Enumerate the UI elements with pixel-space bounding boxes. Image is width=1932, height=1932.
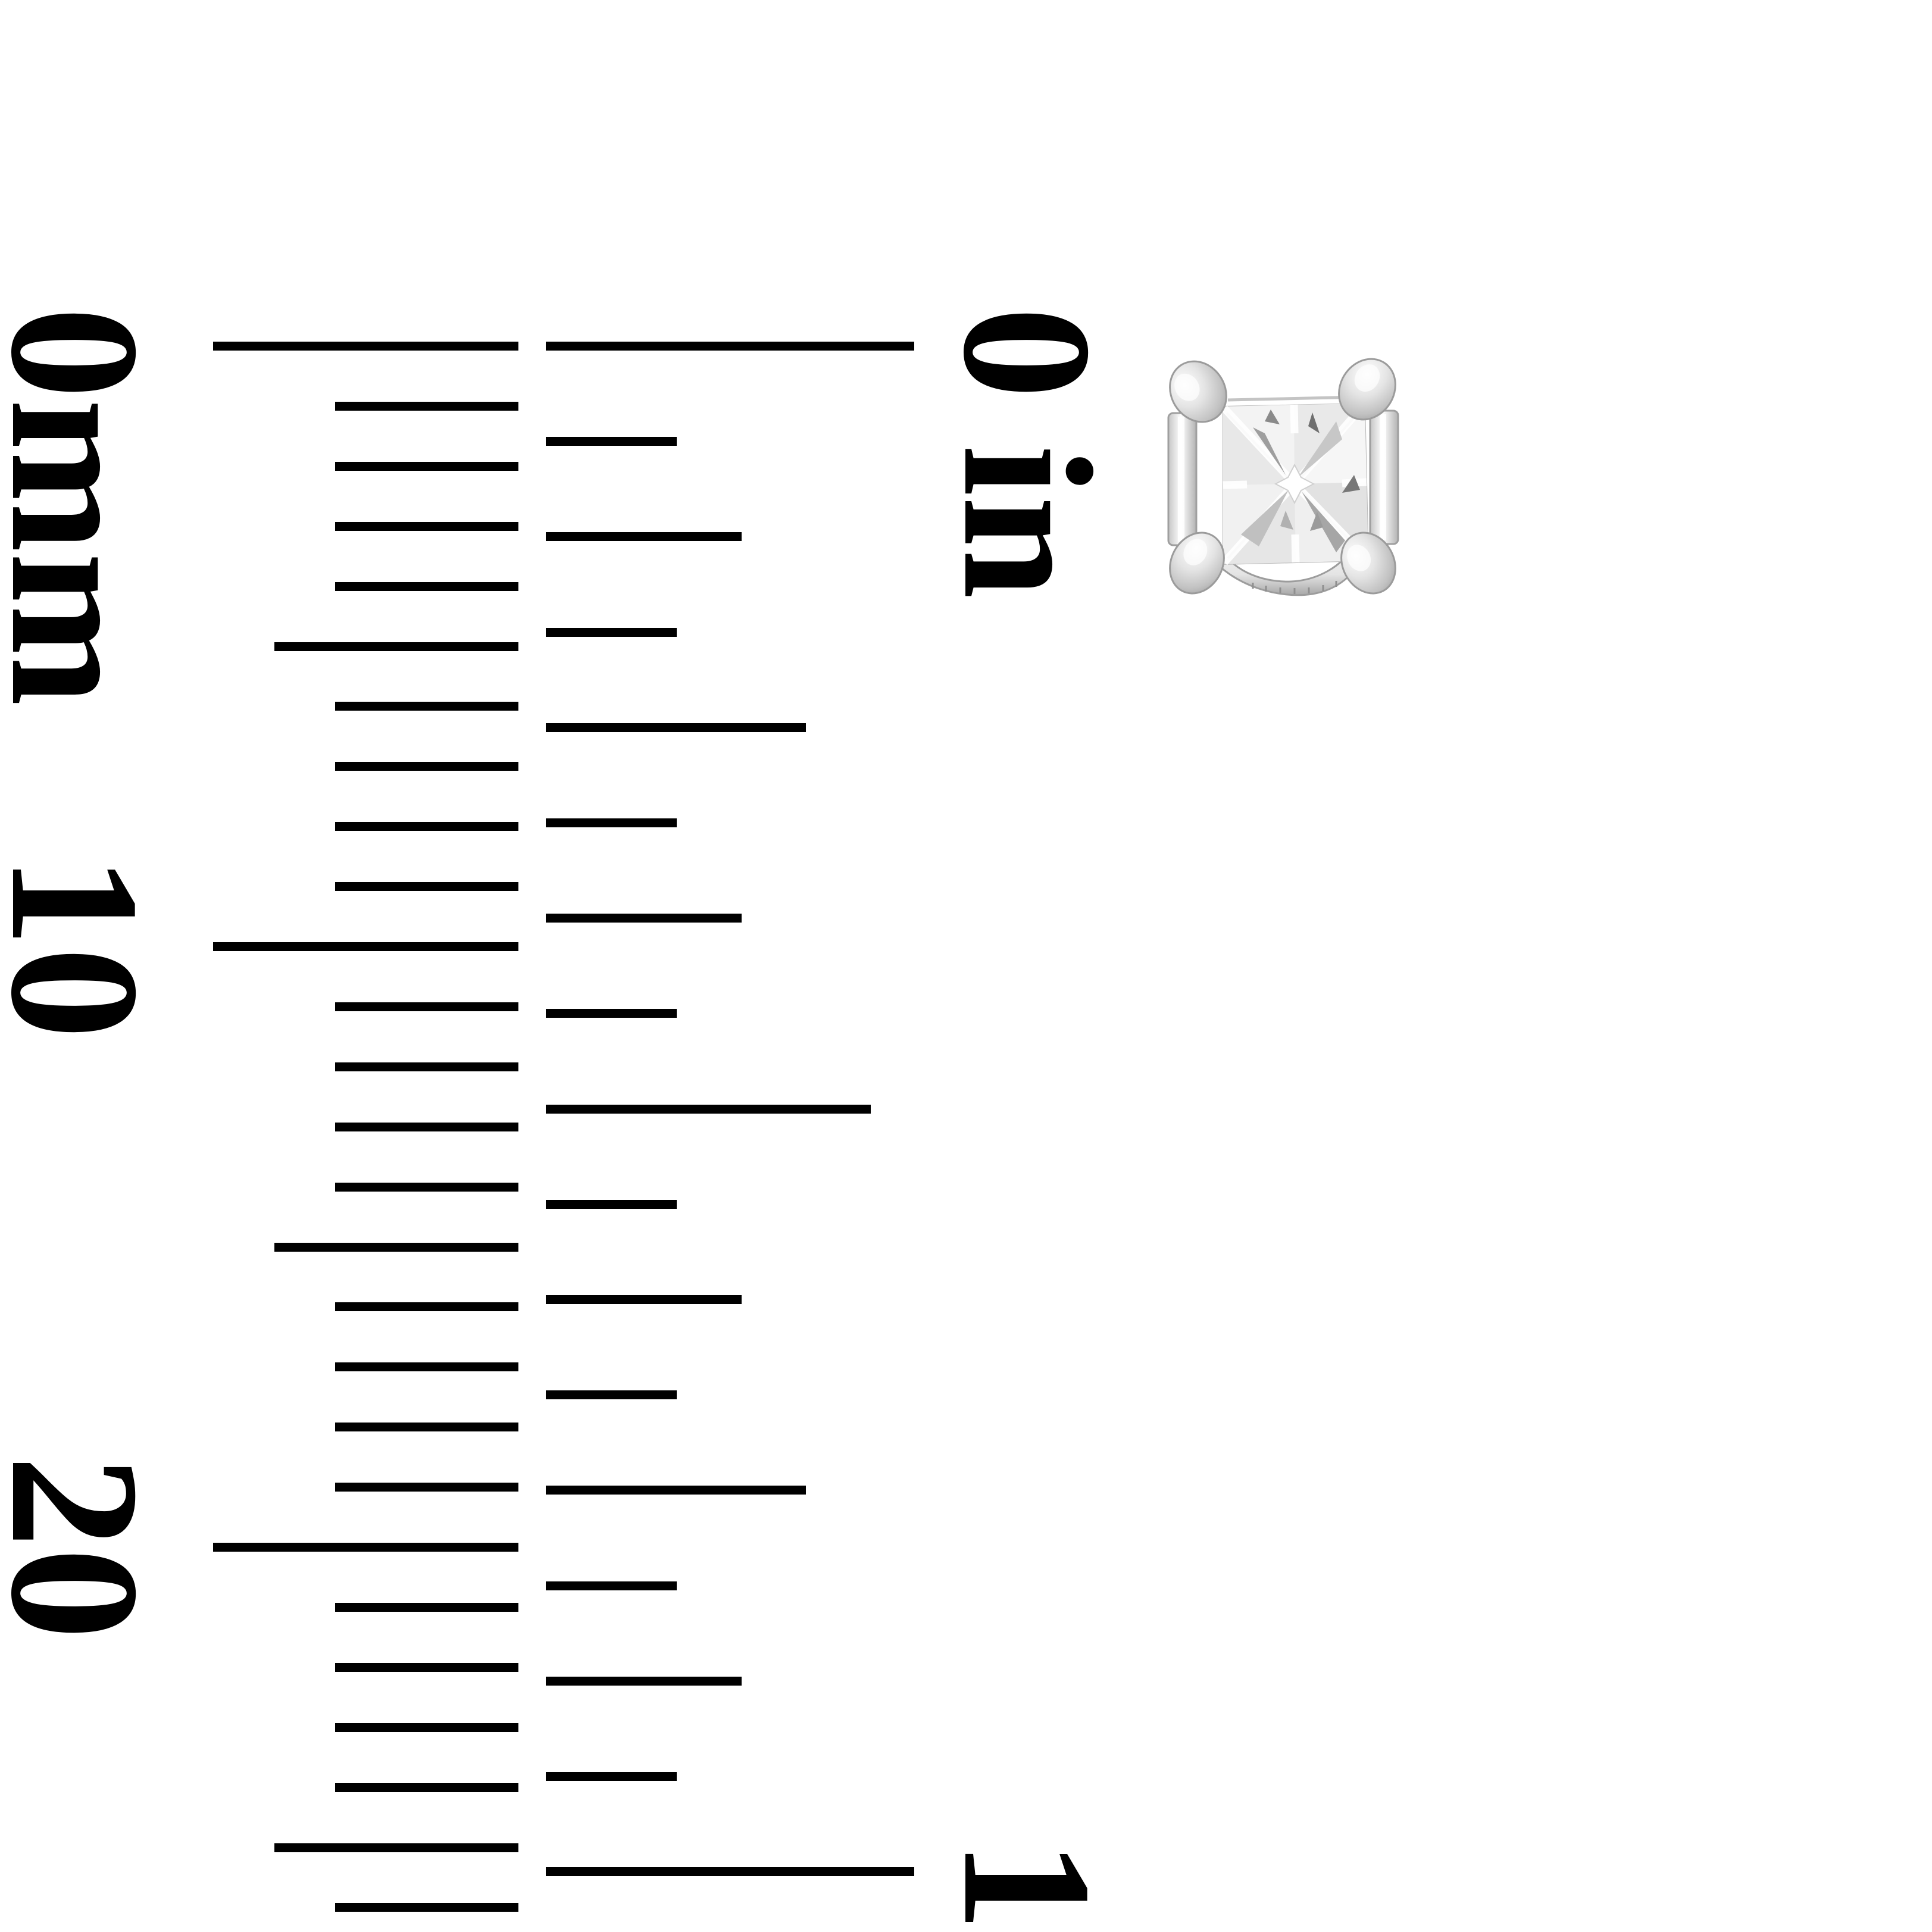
inch-tick-9	[546, 1200, 677, 1209]
mm-tick-13	[335, 1123, 518, 1131]
mm-tick-17	[335, 1362, 518, 1371]
mm-tick-15	[274, 1243, 518, 1252]
mm-ten-label: 10	[0, 855, 167, 1039]
product-scale-image: 0mm 10 20 0 in 1	[0, 0, 1932, 1932]
inch-tick-13	[546, 1581, 677, 1590]
mm-tick-5	[274, 642, 518, 651]
mm-tick-14	[335, 1183, 518, 1192]
inch-tick-0	[546, 342, 914, 351]
inch-zero-label: 0 in	[934, 307, 1119, 599]
inch-tick-16	[546, 1867, 914, 1876]
mm-tick-7	[335, 762, 518, 771]
inch-one-label: 1	[934, 1839, 1119, 1931]
mm-tick-3	[335, 522, 518, 531]
mm-tick-11	[335, 1002, 518, 1011]
inch-tick-15	[546, 1772, 677, 1781]
inch-tick-4	[546, 723, 806, 732]
mm-tick-16	[335, 1302, 518, 1311]
inch-tick-7	[546, 1009, 677, 1018]
mm-zero-label: 0mm	[0, 307, 167, 706]
mm-tick-10	[213, 942, 518, 951]
mm-twenty-label: 20	[0, 1455, 167, 1640]
mm-tick-26	[335, 1903, 518, 1912]
inch-tick-10	[546, 1295, 742, 1304]
inch-tick-6	[546, 914, 742, 923]
inch-tick-12	[546, 1486, 806, 1495]
mm-tick-23	[335, 1723, 518, 1732]
mm-tick-9	[335, 882, 518, 891]
inch-tick-5	[546, 818, 677, 827]
mm-tick-25	[274, 1843, 518, 1852]
inch-tick-1	[546, 437, 677, 446]
mm-tick-22	[335, 1663, 518, 1672]
inch-tick-8	[546, 1105, 871, 1114]
mm-tick-6	[335, 702, 518, 711]
inch-tick-14	[546, 1677, 742, 1686]
earring-photo	[1164, 356, 1402, 605]
mm-tick-20	[213, 1543, 518, 1552]
inch-tick-2	[546, 532, 742, 541]
mm-tick-0	[213, 342, 518, 351]
mm-tick-8	[335, 822, 518, 831]
mm-tick-2	[335, 462, 518, 471]
mm-tick-21	[335, 1603, 518, 1612]
mm-tick-1	[335, 402, 518, 411]
mm-tick-18	[335, 1423, 518, 1431]
right-rail	[1370, 411, 1398, 544]
mm-tick-12	[335, 1062, 518, 1071]
left-rail	[1168, 413, 1196, 545]
mm-tick-24	[335, 1783, 518, 1792]
mm-tick-4	[335, 582, 518, 591]
inch-tick-11	[546, 1390, 677, 1399]
mm-tick-19	[335, 1483, 518, 1492]
inch-tick-3	[546, 628, 677, 637]
